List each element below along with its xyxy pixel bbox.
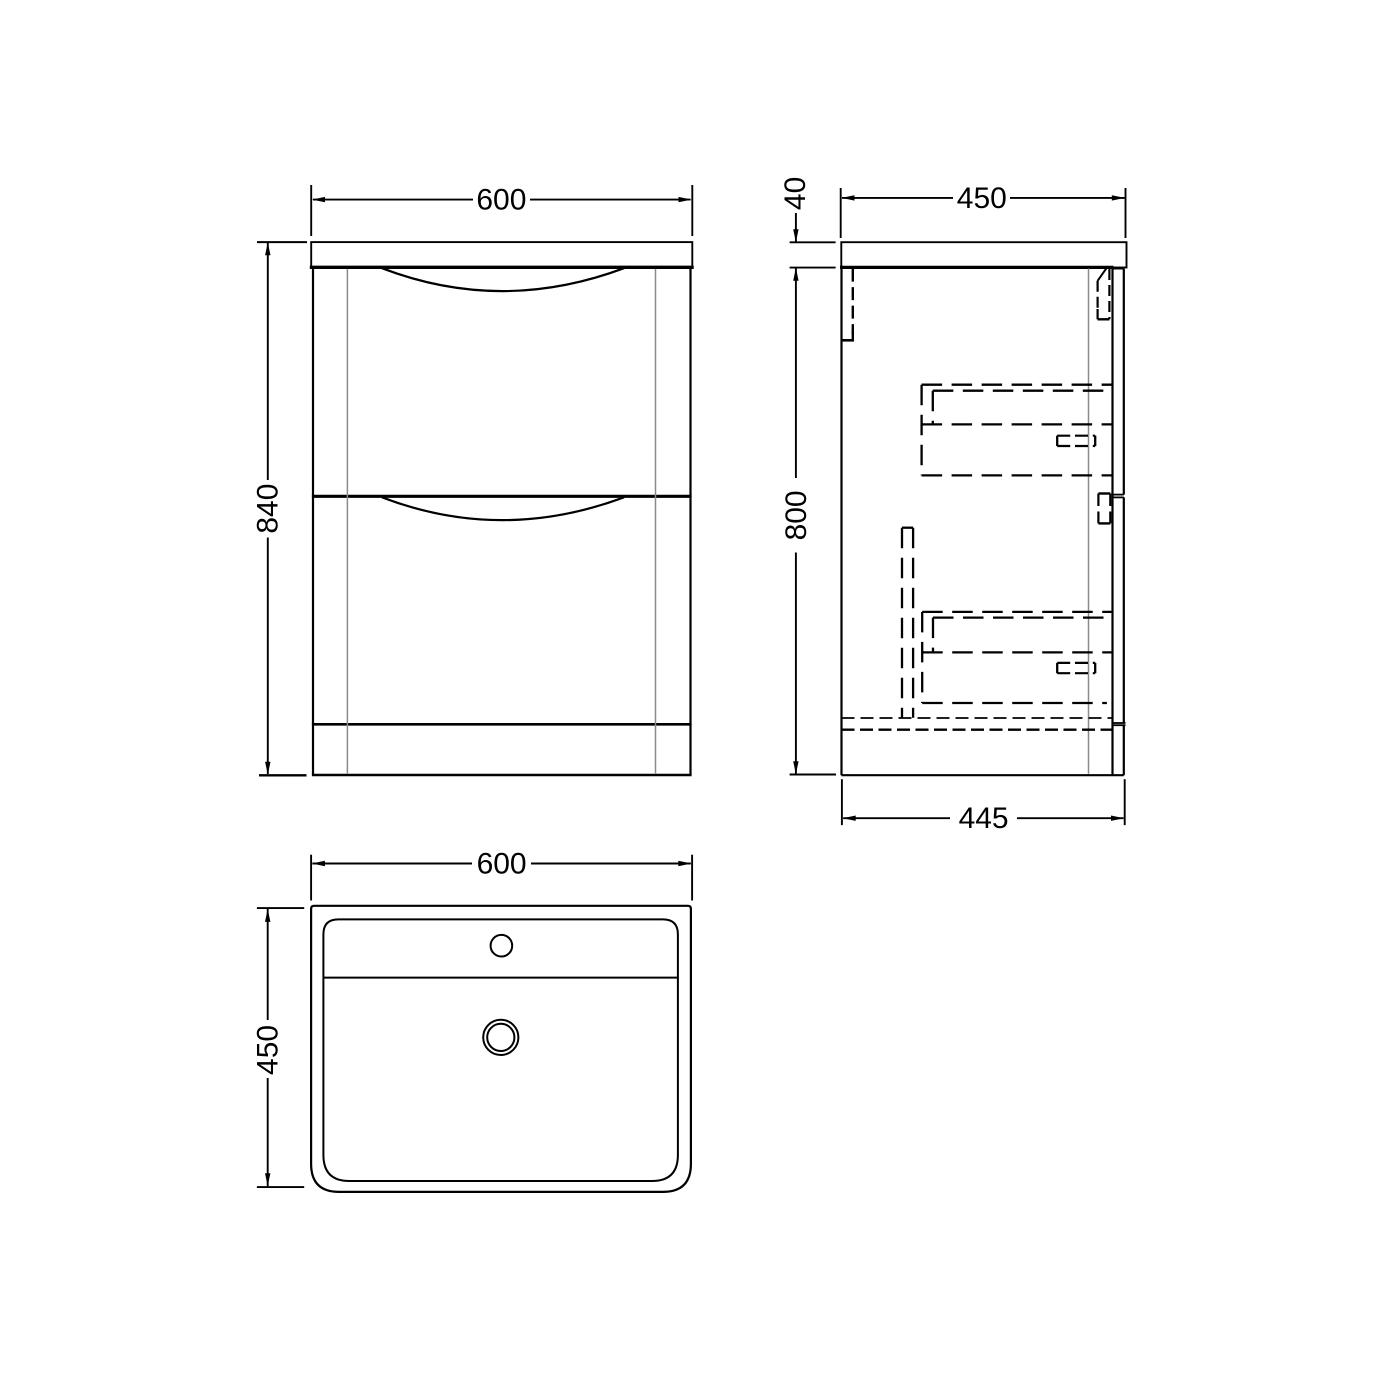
svg-text:840: 840 — [252, 484, 285, 534]
svg-text:450: 450 — [252, 1025, 285, 1075]
svg-text:40: 40 — [779, 177, 812, 210]
svg-text:600: 600 — [476, 184, 526, 217]
svg-text:450: 450 — [957, 182, 1007, 215]
svg-text:445: 445 — [959, 802, 1009, 835]
svg-text:600: 600 — [477, 847, 527, 880]
svg-text:800: 800 — [780, 490, 813, 540]
